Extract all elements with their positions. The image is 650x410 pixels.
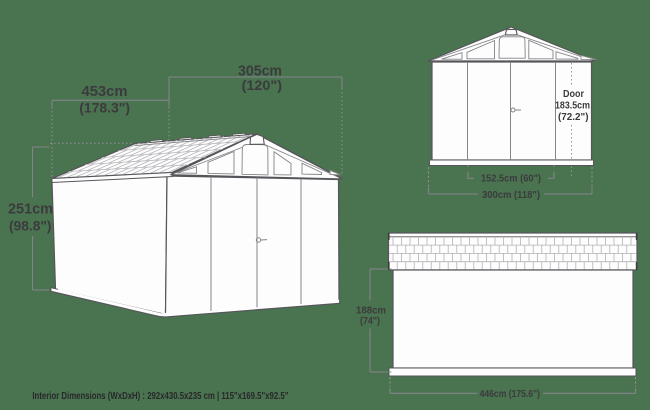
svg-text:446cm (175.6"): 446cm (175.6"): [480, 389, 540, 400]
svg-text:(178.3"): (178.3"): [79, 100, 130, 116]
svg-text:251cm: 251cm: [8, 202, 53, 218]
svg-text:(72.2"): (72.2"): [558, 111, 589, 123]
svg-text:300cm (118"): 300cm (118"): [482, 189, 540, 201]
svg-text:(74"): (74"): [360, 316, 380, 327]
svg-text:Door: Door: [563, 88, 584, 100]
svg-text:152.5cm (60"): 152.5cm (60"): [481, 173, 541, 185]
svg-text:(120"): (120"): [242, 77, 282, 93]
svg-text:453cm: 453cm: [82, 84, 128, 100]
svg-text:(98.8"): (98.8"): [9, 217, 52, 233]
svg-text:Interior Dimensions (WxDxH) :: Interior Dimensions (WxDxH) : 292x430.5x…: [32, 391, 288, 402]
